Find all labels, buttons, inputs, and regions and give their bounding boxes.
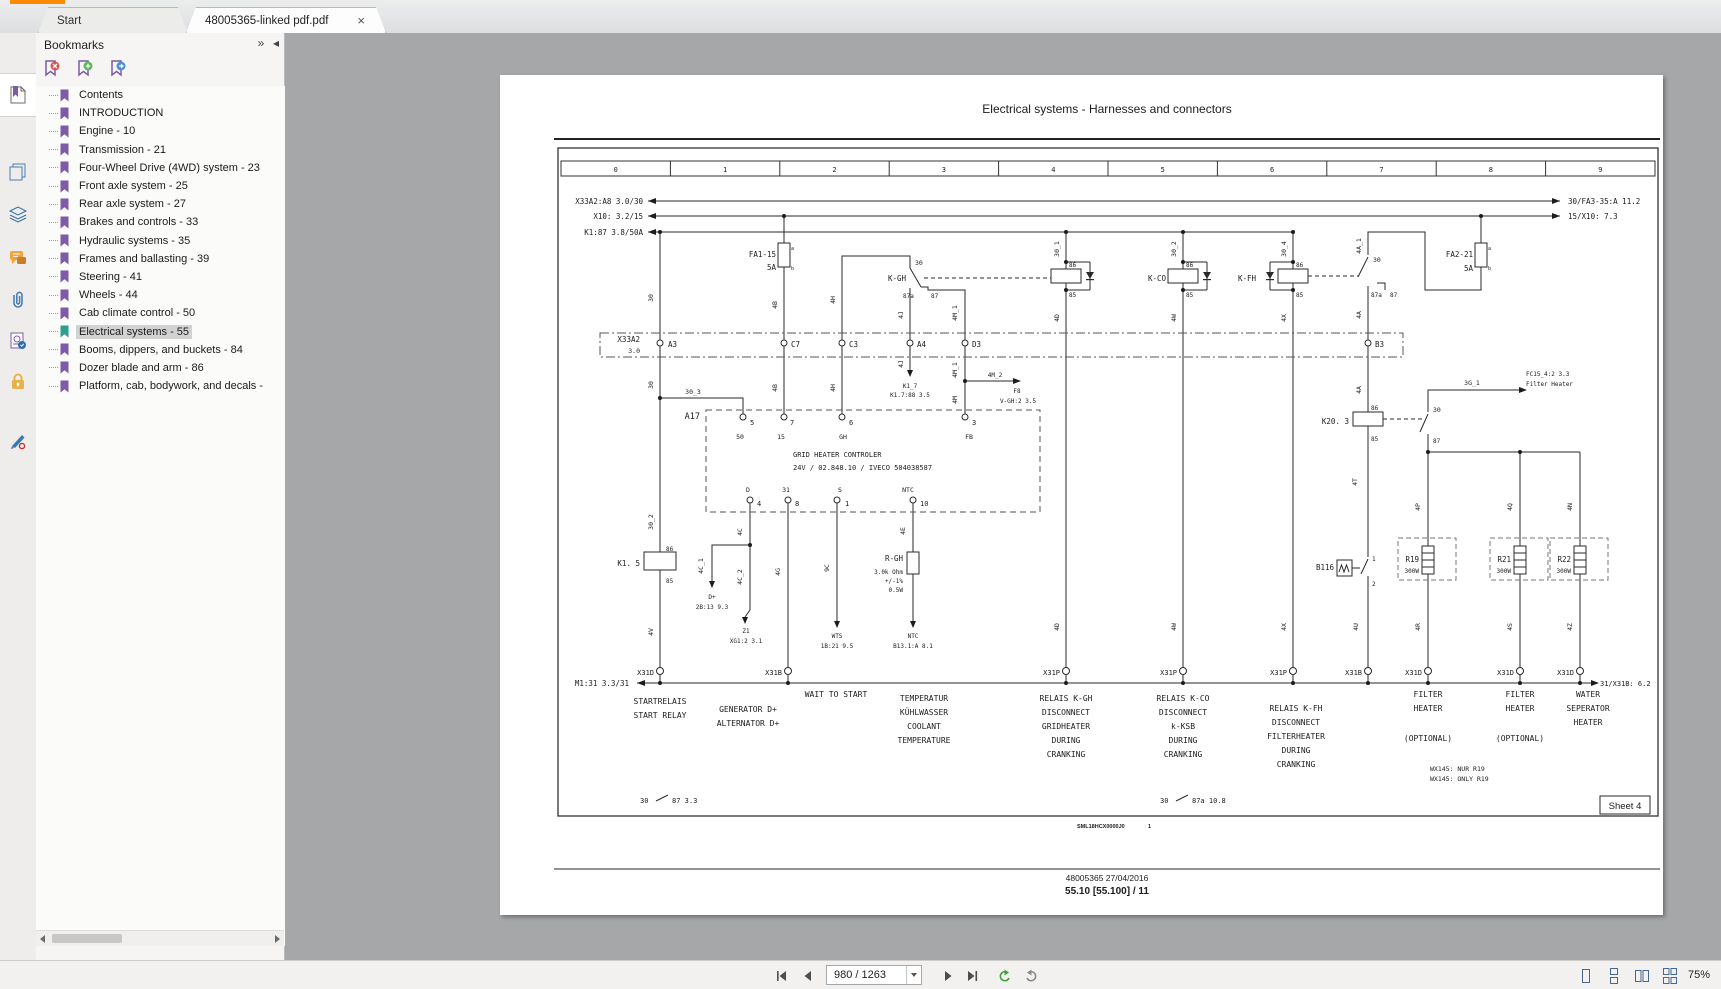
diagram-label: HEATER (1506, 704, 1535, 713)
diagram-label: FB (965, 433, 973, 441)
diagram-label: 4N (1566, 503, 1574, 511)
ruler-number: 5 (1161, 166, 1165, 174)
status-bar: 980 / 1263 75% (0, 960, 1721, 989)
app-accent-bar (10, 0, 65, 4)
diagram-label: 4Q (1506, 503, 1514, 511)
diagram-label: 4B (771, 301, 779, 309)
ruler-number: 3 (942, 166, 946, 174)
connector-pin (1063, 668, 1070, 675)
relay-coil-k20-3 (1353, 412, 1383, 426)
connector-pin (1517, 668, 1524, 675)
diagram-label: B116 (1316, 563, 1335, 572)
connector-pin (962, 414, 968, 420)
tab-document-label: 48005365-linked pdf.pdf (205, 15, 328, 27)
connector-pin (1365, 668, 1372, 675)
bookmark-item[interactable]: Engine - 10 (36, 122, 285, 140)
connector-pin (910, 497, 916, 503)
diagram-label: +/-1% (885, 578, 903, 585)
diagram-label: CRANKING (1164, 750, 1203, 759)
ruler-number: 2 (832, 166, 836, 174)
diagram-label: a (1488, 246, 1491, 252)
diagram-label: 4D (1053, 314, 1061, 322)
page-dropdown-icon[interactable] (906, 966, 921, 984)
connector-pin (657, 668, 664, 675)
diagram-label: CRANKING (1047, 750, 1086, 759)
diagram-label: GRID HEATER CONTROLER (793, 451, 882, 459)
last-page-button[interactable] (962, 966, 982, 985)
fuse-fa2-21 (1475, 243, 1487, 267)
bookmark-icon (59, 216, 70, 229)
diagram-label: b (1488, 266, 1491, 272)
bookmark-label: Brakes and controls - 33 (76, 215, 201, 229)
security-panel-icon[interactable] (0, 361, 36, 403)
tree-connector (49, 313, 58, 314)
bookmark-icon (59, 325, 70, 338)
connector-pin (907, 340, 913, 346)
diagram-label: 30_2 (1170, 241, 1178, 257)
diagram-label: K1:87 3.8/50A (584, 228, 643, 237)
diagram-label: 3G_1 (1464, 379, 1480, 387)
bookmark-label: Contents (76, 88, 126, 102)
diagram-label: 15 (777, 433, 785, 441)
page-number-input[interactable]: 980 / 1263 (826, 965, 922, 985)
diagram-label: 85 (1371, 436, 1379, 443)
continuous-facing-view-icon[interactable] (1660, 966, 1680, 985)
diagram-label: FA1-15 (749, 250, 776, 259)
diagram-label: K1_7 (903, 383, 918, 390)
tree-connector (49, 349, 58, 350)
bookmark-icon (59, 361, 70, 374)
connector-pin (781, 340, 787, 346)
bookmark-item[interactable]: Cab climate control - 50 (36, 304, 285, 322)
diagram-label: 4H (829, 296, 837, 304)
diagram-label: K20. 3 (1322, 417, 1349, 426)
diagram-label: 30 (647, 381, 655, 389)
tree-connector (49, 204, 58, 205)
diagram-label: 3 (972, 419, 976, 427)
connector-pin (785, 668, 792, 675)
diagram-label: RELAIS K-FH (1270, 704, 1323, 713)
tree-connector (49, 131, 58, 132)
bookmark-item[interactable]: Platform, cab, bodywork, and decals - (36, 377, 285, 395)
diagram-label: 4S (1506, 623, 1514, 631)
bookmark-item[interactable]: Rear axle system - 27 (36, 195, 285, 213)
ruler-number: 8 (1489, 166, 1493, 174)
relay-coil-k-co (1168, 269, 1198, 283)
diagram-label: K-FH (1238, 274, 1257, 283)
diagram-label: 15/X10: 7.3 (1568, 212, 1618, 221)
tree-connector (49, 167, 58, 168)
diagram-label: 4C_2 (736, 569, 744, 585)
bookmark-label: Wheels - 44 (76, 288, 141, 302)
diagram-label: 3.0 (628, 347, 640, 355)
diagram-label: X10: 3.2/15 (593, 212, 643, 221)
thermo-switch-b116 (1337, 560, 1352, 576)
diagram-label: GRIDHEATER (1042, 722, 1090, 731)
diagram-label: X31D (637, 669, 654, 677)
connector-pin (1425, 668, 1432, 675)
diagram-label: 4E (899, 527, 907, 535)
bookmark-label: Cab climate control - 50 (76, 306, 198, 320)
diagram-label: Z1 (742, 628, 750, 635)
navigation-icon-strip (0, 33, 37, 960)
diagram-label: 4V (647, 628, 655, 636)
single-page-view-icon[interactable] (1576, 966, 1596, 985)
diagram-label: 87 3.3 (672, 797, 697, 805)
pdf-page: Electrical systems - Harnesses and conne… (500, 75, 1663, 915)
diagram-label: a (791, 246, 794, 252)
bookmark-icon (59, 161, 70, 174)
bookmark-label: Electrical systems - 55 (76, 325, 192, 339)
bookmark-icon (59, 343, 70, 356)
delete-bookmark-button[interactable] (42, 59, 62, 81)
connector-pin (1180, 668, 1187, 675)
diagram-label: R22 (1557, 555, 1571, 564)
diagram-label: X31P (1270, 669, 1287, 677)
diagram-label: 0.5W (889, 587, 904, 594)
previous-page-button[interactable] (798, 966, 818, 985)
bookmarks-hscrollbar[interactable] (36, 930, 284, 946)
layers-panel-icon[interactable] (0, 193, 36, 235)
diagram-label: K-CO (1148, 274, 1167, 283)
previous-view-icon[interactable] (994, 966, 1014, 985)
diagram-label: 30 (915, 259, 923, 267)
diagram-label: 4Z (1566, 623, 1574, 631)
diagram-label: XG1:2 3.1 (730, 638, 763, 645)
diagram-label: X31D (1497, 669, 1514, 677)
connector-pin (839, 340, 845, 346)
diagram-label: 5A (767, 263, 777, 272)
diagram-label: 24V / 02.848.10 / IVECO 504038587 (793, 464, 932, 472)
tree-connector (49, 222, 58, 223)
tree-connector (49, 331, 58, 332)
diagram-label: 30 (1433, 406, 1441, 414)
bookmark-item[interactable]: Steering - 41 (36, 268, 285, 286)
diagram-label: 300W (1497, 568, 1512, 575)
diagram-label: X33A2:A8 3.0/30 (575, 197, 643, 206)
diagram-label: ALTERNATOR D+ (717, 719, 780, 728)
bookmark-icon (59, 125, 70, 138)
diagram-label: WATER (1576, 690, 1600, 699)
diagram-label: 87a 10.8 (1192, 797, 1226, 805)
diagram-label: A17 (685, 412, 700, 422)
bookmark-icon (59, 307, 70, 320)
ruler-number: 7 (1379, 166, 1383, 174)
diagram-label: 87a (1371, 292, 1382, 299)
bookmark-item[interactable]: Four-Wheel Drive (4WD) system - 23 (36, 159, 285, 177)
bookmark-icon (59, 380, 70, 393)
diagram-label: 4A (1355, 311, 1363, 319)
comments-panel-icon[interactable] (0, 237, 36, 279)
tree-connector (49, 113, 58, 114)
diagram-label: 4M (951, 396, 959, 404)
bookmark-label: Dozer blade and arm - 86 (76, 361, 207, 375)
diagram-label: R-GH (885, 554, 904, 563)
first-page-button[interactable] (772, 966, 792, 985)
continuous-view-icon[interactable] (1604, 966, 1624, 985)
bookmarks-panel-icon[interactable] (0, 73, 36, 117)
tab-document[interactable]: 48005365-linked pdf.pdf × (186, 7, 386, 33)
bookmark-icon (59, 89, 70, 102)
controller-box-a17 (706, 410, 1040, 512)
diagram-label: STARTRELAIS (634, 697, 687, 706)
fuse-fa1-15 (778, 243, 790, 267)
diagram-label: 30 (647, 294, 655, 302)
diagram-label: WAIT TO START (805, 690, 868, 699)
diagram-label: NTC (908, 633, 919, 640)
relay-coil-k-fh (1278, 269, 1308, 283)
diagram-label: WX145: ONLY R19 (1430, 775, 1489, 783)
bookmark-label: Hydraulic systems - 35 (76, 234, 193, 248)
connector-pin (839, 414, 845, 420)
diagram-label: D (746, 486, 750, 494)
diagram-label: 4A (1355, 386, 1363, 394)
diagram-label: C7 (791, 340, 800, 349)
page-number-value: 980 / 1263 (827, 969, 906, 981)
bookmark-icon (59, 107, 70, 120)
bookmarks-toolbar (42, 59, 128, 83)
diagram-label: X31P (1160, 669, 1177, 677)
diagram-label: 10 (920, 500, 928, 508)
tab-start[interactable]: Start (38, 7, 188, 33)
bookmark-item[interactable]: Brakes and controls - 33 (36, 213, 285, 231)
diagram-label: 1 (845, 500, 849, 508)
diagram-label: 31 (782, 486, 790, 494)
diagram-label: 4U (1352, 623, 1360, 631)
bookmark-label: Front axle system - 25 (76, 179, 191, 193)
tree-connector (49, 240, 58, 241)
diagram-label: TEMPERATUR (900, 694, 948, 703)
page-title: Electrical systems - Harnesses and conne… (982, 102, 1231, 116)
bookmark-icon (59, 180, 70, 193)
bookmark-icon (59, 234, 70, 247)
bookmark-icon (59, 252, 70, 265)
diagram-label: 4C (736, 528, 744, 536)
bookmark-item[interactable]: Contents (36, 86, 285, 104)
bookmark-label: Booms, dippers, and buckets - 84 (76, 343, 246, 357)
diagram-label: b (791, 266, 794, 272)
document-canvas[interactable]: Electrical systems - Harnesses and conne… (285, 33, 1721, 960)
diagram-label: 1 (1372, 556, 1376, 563)
connector-pin (962, 340, 968, 346)
digital-signatures-panel-icon[interactable] (0, 421, 36, 463)
diagram-label: 4D (1053, 623, 1061, 631)
diagram-label: 86 (1371, 405, 1379, 412)
connector-pin (785, 497, 791, 503)
diagram-label: FC15_4:2 3.3 (1526, 371, 1570, 378)
attachments-panel-icon[interactable] (0, 279, 36, 321)
bookmarks-panel-title: Bookmarks (44, 38, 104, 52)
bookmarks-list: ContentsINTRODUCTIONEngine - 10Transmiss… (36, 86, 285, 946)
tree-connector (49, 295, 58, 296)
diagram-label: RELAIS K-GH (1040, 694, 1093, 703)
bookmark-label: Frames and ballasting - 39 (76, 252, 212, 266)
next-page-button[interactable] (938, 966, 958, 985)
diagram-label: 87 (1433, 438, 1441, 445)
diagram-label: 4X (1280, 623, 1288, 631)
tree-connector (49, 367, 58, 368)
tree-connector (49, 276, 58, 277)
diagram-label: 4J (897, 360, 905, 368)
diagram-label: X31D (1405, 669, 1422, 677)
diagram-label: WX145: NUR R19 (1430, 765, 1485, 773)
diagram-label: D3 (972, 340, 981, 349)
tree-connector (49, 386, 58, 387)
diagram-label: FA2-21 (1446, 250, 1473, 259)
bookmark-label: Four-Wheel Drive (4WD) system - 23 (76, 161, 263, 175)
collapse-panel-icon[interactable]: » (254, 36, 268, 50)
resistor-r-gh (907, 552, 919, 574)
diagram-label: 4A_1 (1355, 238, 1363, 254)
diagram-label: 87 (1390, 292, 1398, 299)
diagram-label: DISCONNECT (1042, 708, 1090, 717)
diagram-label: 1B:21 9.5 (821, 643, 854, 650)
diagram-label: K1. 5 (617, 559, 640, 568)
next-view-icon[interactable] (1022, 966, 1042, 985)
connector-band-x33a2 (600, 333, 1403, 357)
bookmark-label: Transmission - 21 (76, 143, 169, 157)
diagram-label: X31B (1345, 669, 1362, 677)
diagram-label: NTC (902, 486, 914, 494)
diagram-label: 4B (771, 384, 779, 392)
diagram-label: HEATER (1414, 704, 1443, 713)
diagram-label: K1.7:88 3.5 (890, 392, 930, 399)
connector-pin (1577, 668, 1584, 675)
diagram-label: 300W (1557, 568, 1572, 575)
diagram-label: 8 (795, 500, 799, 508)
application-window: Start 48005365-linked pdf.pdf × (0, 0, 1721, 989)
diagram-label: S (838, 486, 842, 494)
diagram-label: Filter Heater (1526, 381, 1573, 388)
ruler-number: 0 (614, 166, 618, 174)
diagram-label: X33A2 (617, 335, 640, 344)
diagram-label: C3 (849, 340, 858, 349)
diagram-label: 5A (1464, 264, 1474, 273)
diagram-label: K-GH (888, 274, 907, 283)
diagram-label: SEPERATOR (1566, 704, 1610, 713)
diagram-label: 86 (1069, 262, 1077, 269)
drawing-code: SML18HCX0000J0 (1077, 824, 1125, 830)
diagram-label: 30_4 (1280, 241, 1288, 257)
bookmark-item[interactable]: INTRODUCTION (36, 104, 285, 122)
diagram-label: R19 (1405, 555, 1419, 564)
diagram-label: 2B:13 9.3 (696, 604, 729, 611)
diagram-label: TEMPERATURE (898, 736, 951, 745)
bookmark-item[interactable]: Front axle system - 25 (36, 177, 285, 195)
scroll-left-icon[interactable] (37, 933, 49, 944)
connector-pin (834, 497, 840, 503)
diagram-label: 4X (1280, 314, 1288, 322)
diagram-label: CRANKING (1277, 760, 1316, 769)
bookmark-item[interactable]: Booms, dippers, and buckets - 84 (36, 341, 285, 359)
diagram-label: 30/FA3-35:A 11.2 (1568, 197, 1640, 206)
diagram-label: DISCONNECT (1272, 718, 1320, 727)
bookmark-icon (59, 143, 70, 156)
diagram-label: 5 (750, 419, 754, 427)
diagram-label: 30_3 (685, 388, 701, 396)
page-footer-section: 55.10 [55.100] / 11 (1065, 886, 1149, 897)
bookmark-item[interactable]: Wheels - 44 (36, 286, 285, 304)
diagram-label: 85 (666, 578, 674, 585)
diagram-label: 85 (1186, 292, 1194, 299)
diagram-label: DURING (1052, 736, 1081, 745)
diagram-label: (OPTIONAL) (1496, 734, 1544, 743)
diagram-label: 30_1 (1053, 241, 1061, 257)
diagram-label: X31P (1043, 669, 1060, 677)
diagram-label: START RELAY (634, 711, 687, 720)
expand-bookmark-button[interactable] (108, 59, 128, 81)
diagram-label: F8 (1013, 388, 1021, 395)
diagram-label: 85 (1296, 292, 1304, 299)
bookmark-label: INTRODUCTION (76, 106, 166, 120)
diagram-label: R21 (1497, 555, 1511, 564)
connector-pin (1365, 340, 1371, 346)
relay-coil-k1-5 (644, 552, 676, 570)
diagram-label: WTS (832, 633, 843, 640)
pin-panel-icon[interactable]: ◂ (269, 36, 283, 50)
diagram-label: k-KSB (1171, 722, 1195, 731)
tree-connector (49, 95, 58, 96)
diagram-label: A4 (917, 340, 927, 349)
diagram-label: X31D (1557, 669, 1574, 677)
diagram-label: (OPTIONAL) (1404, 734, 1452, 743)
bookmark-label: Steering - 41 (76, 270, 145, 284)
diagram-label: HEATER (1574, 718, 1603, 727)
diagram-label: 86 (666, 546, 674, 553)
bookmark-item[interactable]: Hydraulic systems - 35 (36, 232, 285, 250)
diagram-label: 4R (1414, 623, 1422, 631)
bookmarks-panel: Bookmarks » ◂ ContentsINTRODUCTIONEngine… (36, 33, 285, 960)
tree-connector (49, 186, 58, 187)
diagram-label: 3.0k Ohm (874, 569, 903, 576)
add-bookmark-button[interactable] (75, 59, 95, 81)
bookmark-icon (59, 289, 70, 302)
diagram-label: 7 (790, 419, 794, 427)
zoom-level[interactable]: 75% (1688, 969, 1710, 981)
pages-panel-icon[interactable] (0, 151, 36, 193)
diagram-label: 4M_1 (951, 305, 959, 321)
diagram-label: 2 (1372, 581, 1376, 588)
scrollbar-thumb[interactable] (52, 934, 122, 943)
bookmark-item[interactable]: Electrical systems - 55 (36, 322, 285, 340)
close-tab-icon[interactable]: × (355, 16, 367, 26)
scroll-right-icon[interactable] (271, 933, 283, 944)
diagram-label: 4W (1170, 314, 1178, 322)
diagram-label: DURING (1169, 736, 1198, 745)
facing-view-icon[interactable] (1632, 966, 1652, 985)
tree-connector (49, 149, 58, 150)
connector-pin (740, 414, 746, 420)
bookmark-item[interactable]: Transmission - 21 (36, 141, 285, 159)
bookmark-item[interactable]: Dozer blade and arm - 86 (36, 359, 285, 377)
bookmark-icon (59, 270, 70, 283)
bookmark-item[interactable]: Frames and ballasting - 39 (36, 250, 285, 268)
diagram-label: 4H (829, 384, 837, 392)
diagram-label: FILTERHEATER (1267, 732, 1325, 741)
diagram-label: 30 (1160, 797, 1168, 805)
esignature-panel-icon[interactable] (0, 320, 36, 362)
diagram-label: FILTER (1506, 690, 1535, 699)
connector-pin (747, 497, 753, 503)
diagram-label: COOLANT (907, 722, 941, 731)
wires (554, 201, 1660, 869)
diagram-label: DISCONNECT (1159, 708, 1207, 717)
diagram-label: 50 (736, 433, 744, 441)
tree-connector (49, 258, 58, 259)
tab-bar: Start 48005365-linked pdf.pdf × (0, 0, 1721, 34)
diagram-label: 4W (1170, 623, 1178, 631)
diagram-label: 4G (774, 568, 782, 576)
